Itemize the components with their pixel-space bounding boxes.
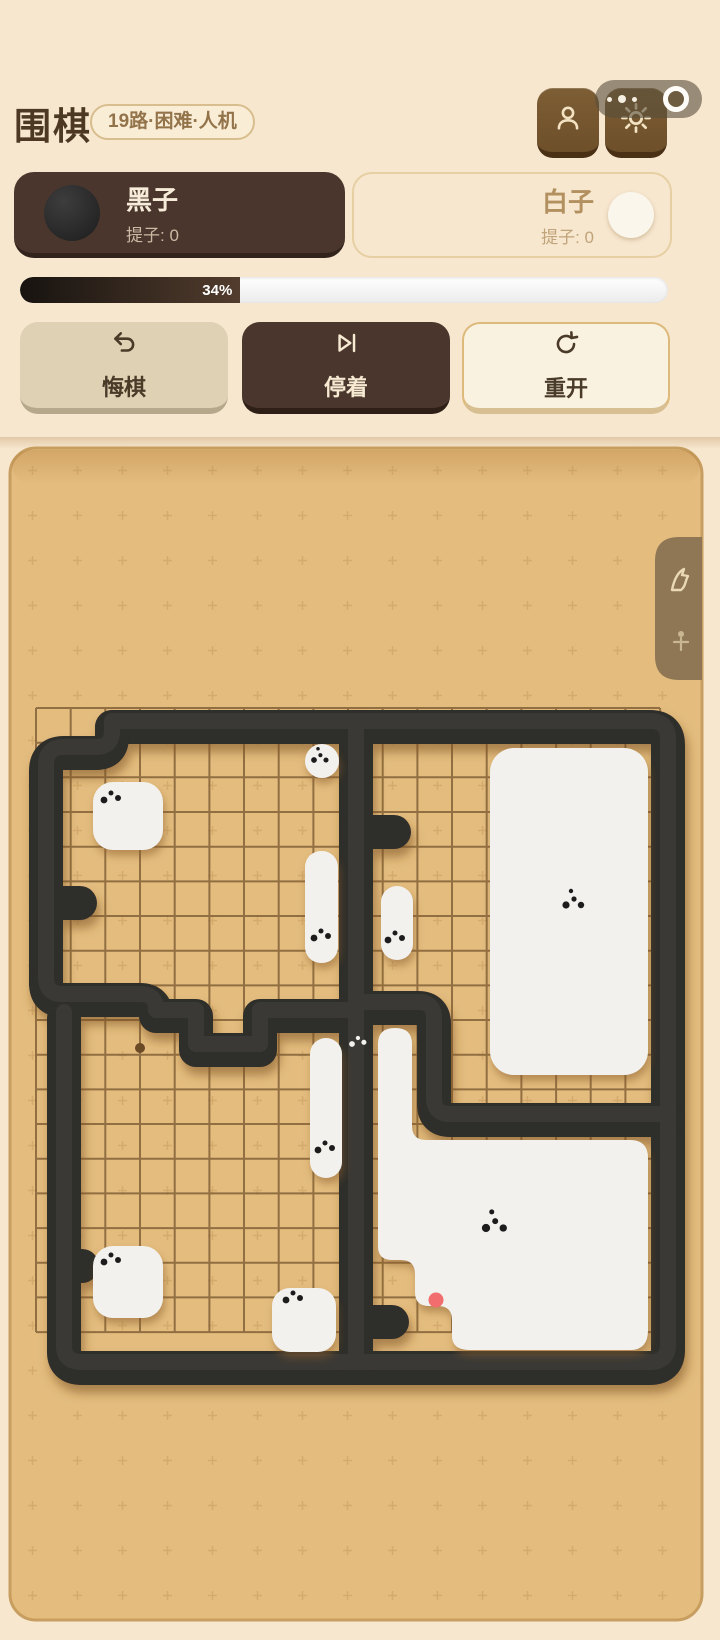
white-group bbox=[381, 886, 413, 960]
white-group bbox=[305, 744, 339, 778]
go-game-screen: 围棋 19路·困难·人机 黑子 提子: 0 bbox=[0, 0, 720, 1640]
go-board[interactable] bbox=[0, 0, 720, 1640]
white-group bbox=[93, 1246, 163, 1318]
last-move-marker bbox=[429, 1293, 444, 1308]
white-group bbox=[272, 1288, 336, 1352]
side-tab[interactable] bbox=[655, 537, 702, 680]
star-point bbox=[135, 1043, 145, 1053]
white-group bbox=[310, 1038, 342, 1178]
white-group bbox=[93, 782, 163, 850]
white-group bbox=[305, 851, 338, 963]
white-group bbox=[490, 748, 648, 1075]
